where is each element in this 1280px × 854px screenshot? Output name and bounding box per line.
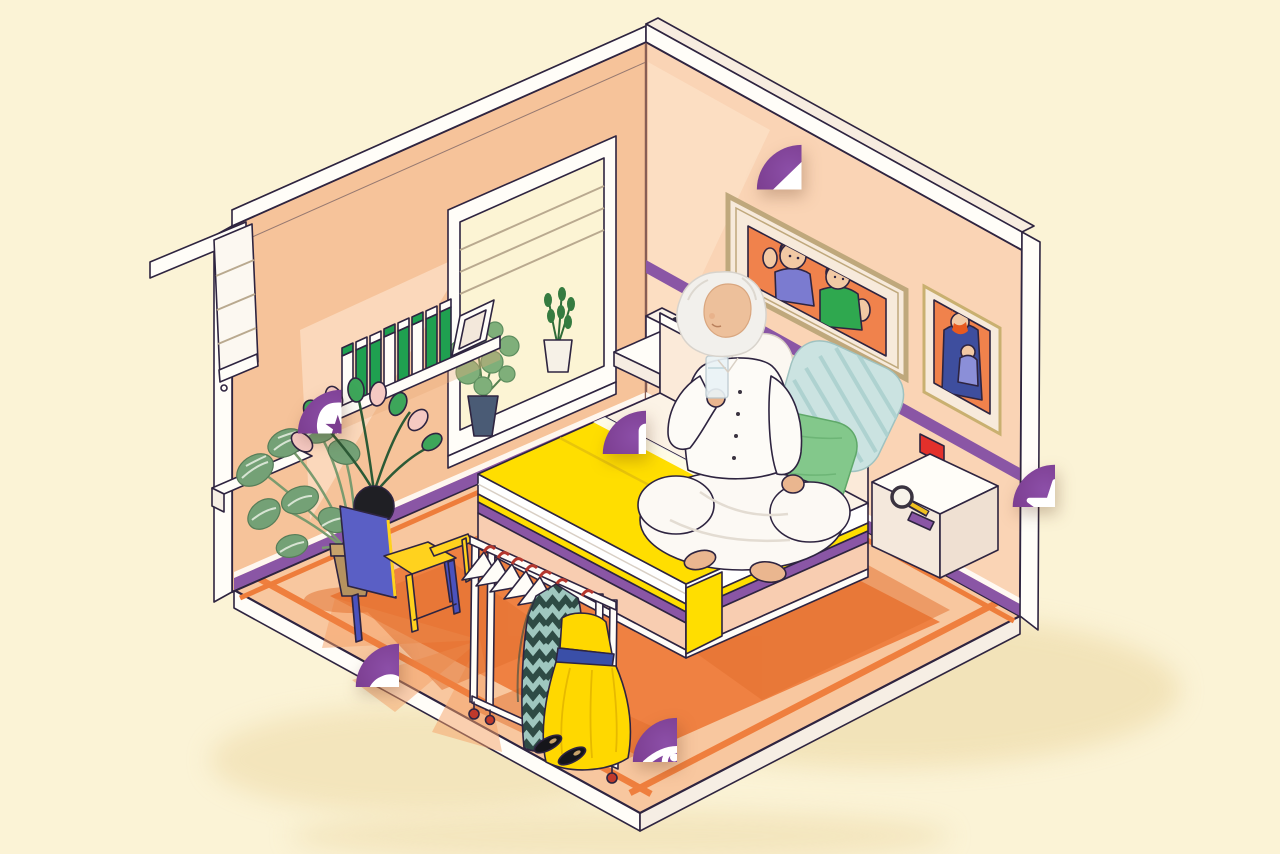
illustration-stage [0,0,1280,854]
home-heart-icon[interactable] [707,95,802,190]
vision-eye-icon[interactable] [583,668,677,762]
strength-muscle-icon[interactable] [307,595,399,687]
chair-backrest [340,506,396,598]
favorite-star-icon[interactable] [965,417,1055,507]
glass-of-water [706,356,728,398]
mind-star-icon[interactable] [249,341,342,434]
face [704,284,751,337]
alert-exclamation-icon[interactable] [554,362,646,454]
